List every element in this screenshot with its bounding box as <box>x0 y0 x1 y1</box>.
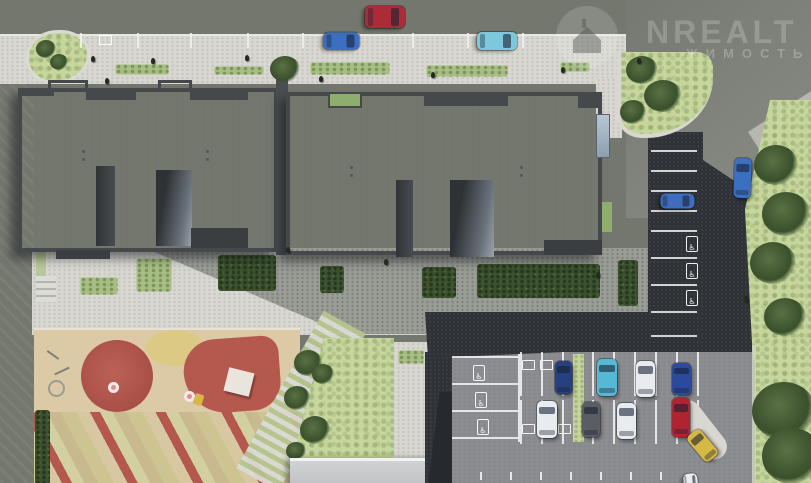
parking-dash <box>570 472 572 480</box>
courtyard-hedge-dark <box>320 266 344 293</box>
pedestrian-figure <box>105 78 109 84</box>
street-parking-line <box>190 33 192 48</box>
street-parking-line <box>412 33 414 48</box>
car-blue <box>324 33 360 50</box>
courtyard-hedge <box>136 258 172 292</box>
roof-wing-sloped <box>156 170 192 246</box>
roof-vent <box>206 158 209 161</box>
parking-dash <box>660 472 662 480</box>
roof-vent <box>520 174 523 177</box>
car-red <box>365 6 405 28</box>
car-white <box>617 403 636 439</box>
roof-wing-sloped <box>450 180 494 257</box>
gap-bush <box>270 56 300 82</box>
courtyard-stairs <box>36 276 56 302</box>
street-parking-line <box>137 33 139 48</box>
parking-stall-line <box>613 400 615 444</box>
parking-stall-line <box>651 257 697 259</box>
pedestrian-figure <box>245 55 249 61</box>
courtyard-hedge <box>80 277 118 295</box>
roof-side-planter <box>602 202 612 232</box>
roof-tab <box>158 80 192 92</box>
sidewalk-hedge <box>115 64 169 75</box>
right-tree <box>764 298 806 336</box>
pedestrian-figure <box>431 72 435 78</box>
parking-stall-line <box>541 352 543 396</box>
parking-stall-line <box>655 400 657 444</box>
parking-stall-line <box>651 230 697 232</box>
building-right-roof <box>286 92 602 255</box>
car-white <box>537 401 557 438</box>
car-cyan <box>477 32 517 50</box>
courtyard-hedge-dark <box>618 260 638 306</box>
blob-tree <box>50 54 68 70</box>
sidewalk-hedge <box>426 65 508 77</box>
parking-stall-line <box>520 352 522 396</box>
courtyard-hedge-dark <box>422 267 456 298</box>
lawn-tree <box>300 416 330 444</box>
parking-stall-line <box>452 356 518 358</box>
roof-notch <box>86 88 136 100</box>
pedestrian-figure <box>319 76 323 82</box>
pedestrian-figure <box>744 296 748 302</box>
parking-stall-line <box>452 410 518 412</box>
wedge-tree <box>644 80 682 112</box>
disabled-parking-icon <box>686 290 698 306</box>
roof-tab <box>48 80 88 92</box>
watermark-subtitle-text: ЖИМОСТЬ <box>686 46 810 61</box>
roof-vent <box>350 166 353 169</box>
parking-stall-line <box>562 400 564 444</box>
car-cyan <box>597 359 617 396</box>
car-blue-driving <box>733 158 751 199</box>
street-parking-line <box>522 33 524 48</box>
right-tree <box>762 192 810 236</box>
playground-hedge-strip <box>35 410 50 483</box>
playground-red-mound <box>81 340 153 412</box>
roof-vent <box>350 174 353 177</box>
lawn-tree <box>284 386 310 410</box>
disabled-parking-icon <box>475 392 487 408</box>
sidewalk-hedge <box>310 62 390 75</box>
roof-vent <box>82 158 85 161</box>
roof-notch <box>190 88 248 100</box>
swing-frame <box>54 367 69 376</box>
parking-marking <box>522 360 535 370</box>
swing-frame <box>47 350 60 360</box>
parking-stall-line <box>651 170 697 172</box>
roof-box <box>191 228 248 248</box>
roof-bottom-wing <box>56 250 110 259</box>
van-blue <box>661 194 695 209</box>
sidewalk-hedge <box>214 66 264 75</box>
parking-dash <box>540 472 542 480</box>
street-parking-line <box>467 33 469 48</box>
street-parking-line <box>247 33 249 48</box>
car-gray <box>582 402 600 437</box>
disabled-parking-icon <box>686 263 698 279</box>
entrance-canopy <box>596 114 610 158</box>
parking-stall-line <box>651 150 697 152</box>
courtyard-green-strip <box>36 248 46 276</box>
wedge-tree <box>620 100 646 124</box>
house-in-circle-icon <box>556 6 618 73</box>
parking-stall-line <box>592 352 594 396</box>
pedestrian-figure <box>91 56 95 62</box>
roof-planter <box>328 92 362 108</box>
watermark: NREALT ЖИМОСТЬ <box>548 4 811 68</box>
roof-vent <box>82 150 85 153</box>
car-navy <box>672 363 691 395</box>
parking-stall-line <box>651 284 697 286</box>
roof-box <box>544 240 602 255</box>
parking-dash <box>480 472 482 480</box>
disabled-parking-icon <box>477 419 489 435</box>
car-red <box>672 398 690 437</box>
roof-wing <box>396 180 413 257</box>
small-building-roof <box>290 458 438 483</box>
pedestrian-figure <box>286 247 290 253</box>
pedestrian-figure <box>384 259 388 265</box>
roof-vent <box>206 150 209 153</box>
disabled-parking-icon <box>473 365 485 381</box>
parking-stall-line <box>452 383 518 385</box>
courtyard-hedge-dark <box>218 255 276 291</box>
parking-stall-line <box>651 190 697 192</box>
courtyard-hedge-dark <box>477 264 600 298</box>
right-tree <box>762 428 811 483</box>
roof-wing <box>96 166 115 246</box>
parking-stall-line <box>697 352 699 396</box>
roof-vent <box>520 166 523 169</box>
car-navy <box>555 361 572 394</box>
roof-step <box>578 92 602 108</box>
car-white-partial <box>683 473 698 483</box>
lawn-planter <box>398 350 424 364</box>
parking-stall-line <box>520 400 522 444</box>
roof-notch <box>424 92 508 106</box>
right-tree <box>750 242 796 284</box>
site-plan-render: NREALT ЖИМОСТЬ <box>0 0 811 483</box>
right-tree <box>754 145 798 185</box>
road-marking <box>99 35 112 45</box>
car-white <box>636 361 655 397</box>
street-parking-line <box>80 33 82 48</box>
parking-dash <box>600 472 602 480</box>
sandbox-ring <box>48 380 65 397</box>
pedestrian-figure <box>151 58 155 64</box>
parking-stall-line <box>651 311 697 313</box>
parking-dash <box>510 472 512 480</box>
parking-stall-line <box>452 437 518 439</box>
parking-stall-line <box>651 335 697 337</box>
disabled-parking-icon <box>686 236 698 252</box>
lawn-tree <box>312 364 334 384</box>
parking-marking <box>558 424 571 434</box>
parking-marking <box>540 360 553 370</box>
street-parking-line <box>302 33 304 48</box>
parking-dash <box>630 472 632 480</box>
parking-stall-line <box>655 352 657 396</box>
parking-marking <box>522 424 535 434</box>
carousel-1 <box>108 382 119 393</box>
pedestrian-figure <box>596 272 600 278</box>
parking-stall-line <box>651 210 697 212</box>
